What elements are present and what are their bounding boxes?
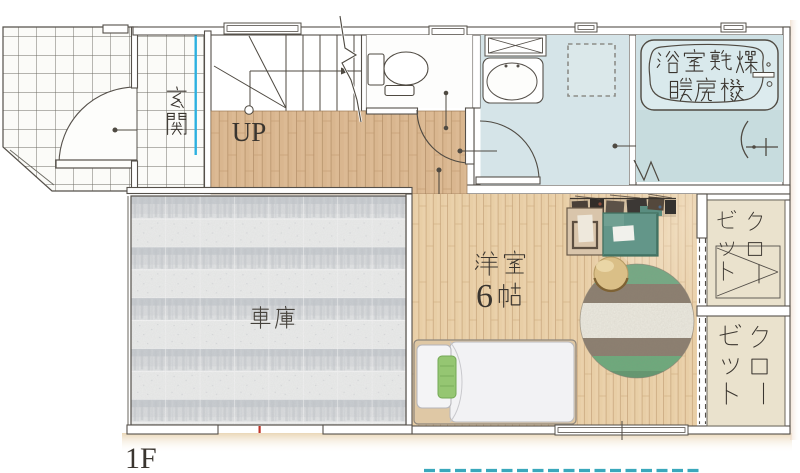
svg-text:1F: 1F <box>125 442 157 473</box>
svg-text:UP: UP <box>232 117 267 147</box>
svg-text:6: 6 <box>476 278 493 315</box>
